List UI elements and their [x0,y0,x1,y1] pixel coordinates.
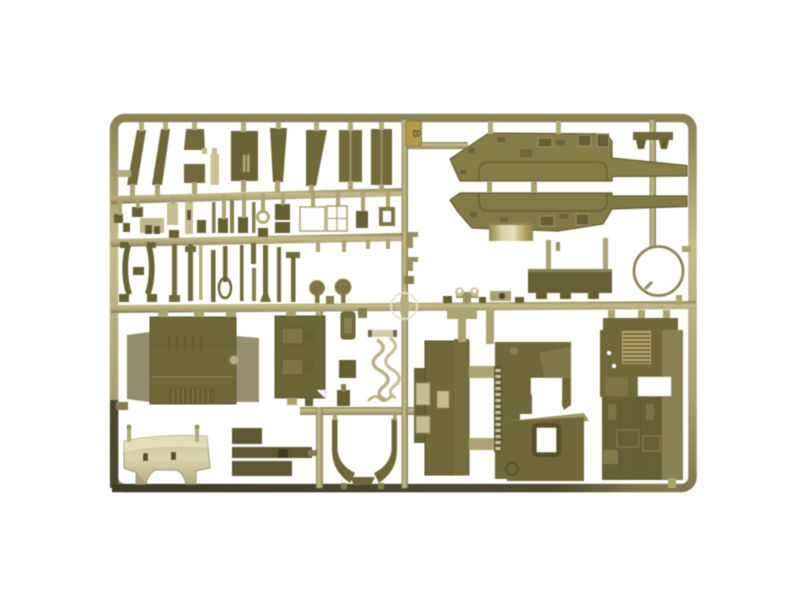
svg-text:B: B [410,130,422,138]
